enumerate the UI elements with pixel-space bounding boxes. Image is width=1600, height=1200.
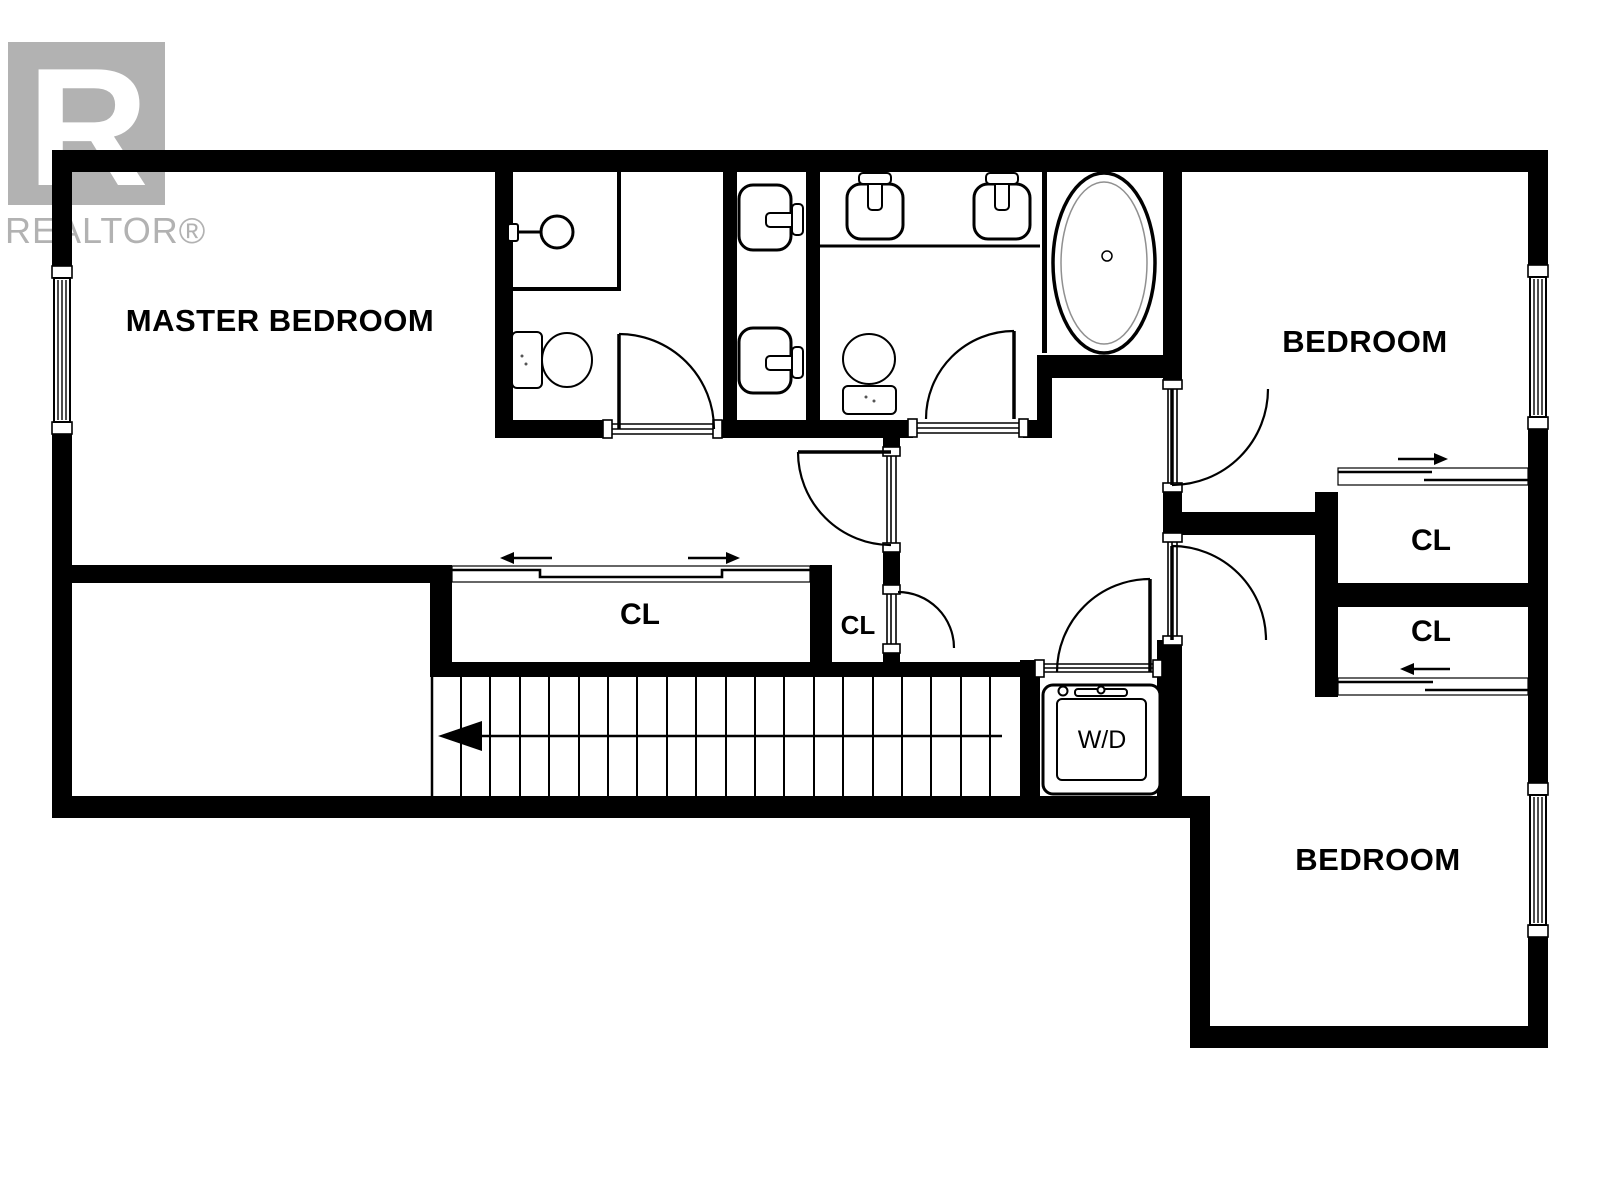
wall-left-bedroom2 xyxy=(1190,796,1210,1048)
label-bedroom-bottom: BEDROOM xyxy=(1295,842,1460,877)
floor-plan: R REALTOR® xyxy=(0,0,1600,1200)
bathtub-icon xyxy=(1053,173,1155,353)
door-bathroom2 xyxy=(926,331,1014,419)
toilet-icon xyxy=(843,334,896,414)
door-bedroom2 xyxy=(1172,546,1266,640)
wall-bottom-bedroom2 xyxy=(1190,1026,1548,1048)
wall-stairs-top xyxy=(430,662,1020,677)
realtor-logo-letter: R xyxy=(27,33,148,221)
realtor-wordmark: REALTOR® xyxy=(5,210,206,251)
sliding-door-closet-right-bottom xyxy=(1338,663,1528,695)
wall-left-lower xyxy=(52,423,72,818)
label-bedroom-top: BEDROOM xyxy=(1282,324,1447,359)
sliding-doors xyxy=(452,453,1528,695)
label-washer-dryer: W/D xyxy=(1078,726,1127,754)
wall-bath2-door-jamb xyxy=(1037,378,1052,438)
wall-right-middle xyxy=(1528,417,1548,795)
wall-bath-south-1 xyxy=(495,420,608,438)
toilet-icon xyxy=(512,332,592,388)
wall-bedroom1-south xyxy=(1182,512,1315,535)
wall-bathrooms-divider xyxy=(806,172,820,438)
window-master-left xyxy=(52,266,72,434)
wall-master-south xyxy=(52,565,430,583)
label-closet-right-top: CL xyxy=(1411,524,1451,557)
wall-hall-east-upper xyxy=(1163,172,1182,385)
wall-top xyxy=(52,150,1548,172)
label-closet-right-bottom: CL xyxy=(1411,615,1451,648)
threshold-bathroom2-door xyxy=(908,419,1028,437)
window-bedroom1-right xyxy=(1528,265,1548,429)
door-master-suite xyxy=(798,452,891,545)
wall-vestibule-jamb-mid xyxy=(883,547,900,590)
label-master-bedroom: MASTER BEDROOM xyxy=(126,303,434,338)
stairs-direction-arrow xyxy=(438,721,1002,751)
door-bedroom1 xyxy=(1172,389,1268,485)
labels: MASTER BEDROOM BEDROOM BEDROOM CL CL CL … xyxy=(126,303,1461,877)
wall-bigcl-west xyxy=(430,565,452,677)
wall-bottom-main xyxy=(52,796,1210,818)
wall-master-bath-divider xyxy=(495,172,513,438)
wall-tub-south xyxy=(1037,355,1182,378)
sink-icon xyxy=(739,328,803,393)
shower-icon xyxy=(508,216,573,248)
wall-closets-divider xyxy=(1315,583,1530,607)
floor-plan-page: R REALTOR® xyxy=(0,0,1600,1200)
door-small-closet xyxy=(898,592,954,648)
sink-icon xyxy=(847,173,903,239)
wall-right-upper xyxy=(1528,150,1548,277)
realtor-logo: R REALTOR® xyxy=(5,33,206,251)
wall-left-upper xyxy=(52,150,72,277)
label-closet-large: CL xyxy=(620,598,660,631)
threshold-master-suite-door xyxy=(883,447,900,552)
sink-icon xyxy=(974,173,1030,239)
wall-cl-mid xyxy=(810,565,832,662)
door-laundry xyxy=(1057,579,1150,672)
stairs xyxy=(432,677,1002,796)
window-bedroom2-right xyxy=(1528,783,1548,937)
wall-laundry-west xyxy=(1020,660,1040,798)
wall-tub-partition xyxy=(1042,172,1047,353)
threshold-bathroom1-door xyxy=(603,420,722,438)
door-bathroom1 xyxy=(619,334,714,429)
sliding-door-large-closet xyxy=(452,552,810,582)
label-closet-small: CL xyxy=(841,610,876,640)
threshold-small-closet-door xyxy=(883,585,900,653)
sink-icon xyxy=(739,185,803,250)
wall-hall-east-mid xyxy=(1163,487,1182,538)
sliding-door-closet-right-top xyxy=(1338,453,1528,485)
wall-vanity-strip-west xyxy=(723,172,737,420)
interior-walls xyxy=(52,172,1530,798)
threshold-laundry-door xyxy=(1035,660,1162,677)
